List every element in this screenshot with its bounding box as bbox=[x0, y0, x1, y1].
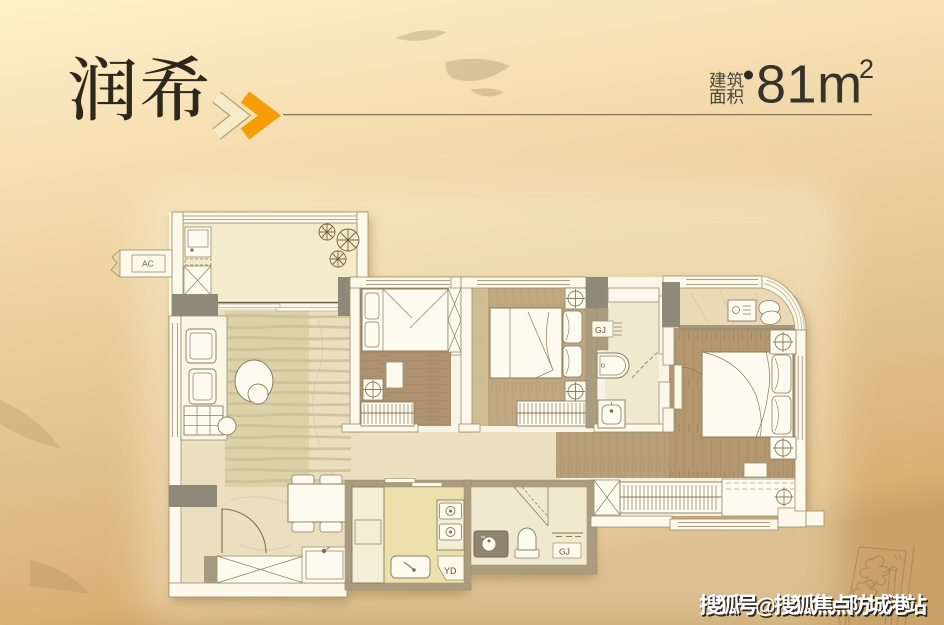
svg-text:YD: YD bbox=[444, 566, 457, 576]
svg-text:81m: 81m bbox=[756, 55, 863, 115]
svg-text:@: @ bbox=[755, 595, 775, 618]
svg-text:GJ: GJ bbox=[595, 325, 606, 335]
svg-text:2: 2 bbox=[859, 54, 874, 84]
svg-text:GJ: GJ bbox=[559, 547, 570, 557]
svg-text:AC: AC bbox=[142, 259, 154, 269]
